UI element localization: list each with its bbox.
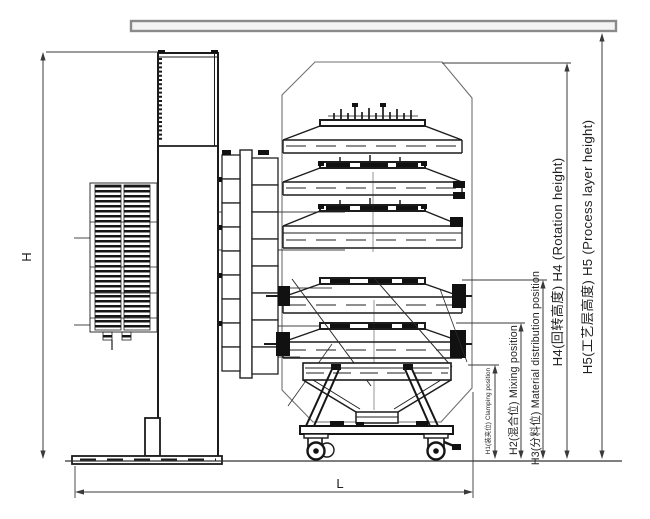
label-H: H: [19, 252, 34, 261]
label-L: L: [336, 476, 343, 491]
funnel-outlet: [356, 412, 398, 423]
discharge-funnel: [303, 363, 451, 423]
column-pedestal: [145, 418, 160, 456]
arrow-left: [75, 489, 84, 494]
arrow-up: [40, 52, 45, 61]
vessel-5: [264, 323, 472, 358]
vessel-2: [283, 155, 465, 199]
vessel-3-latch: [450, 217, 463, 227]
technical-drawing-page: H L H1(装夹位) Clamping position H2(混合位) Mi…: [0, 0, 650, 519]
mixer-elevation-drawing: H L H1(装夹位) Clamping position H2(混合位) Mi…: [0, 0, 650, 519]
hub-segment-stack-right: [252, 158, 278, 374]
fin-column-right: [124, 185, 150, 330]
funnel-band: [303, 363, 451, 380]
fin-column-left: [95, 185, 121, 330]
dim-L: L: [75, 392, 473, 498]
cooling-fin-stack: [74, 183, 158, 350]
label-H2: H2(混合位) Mixing position: [507, 325, 520, 455]
vessel-4: [266, 278, 472, 313]
hub-segment-stack-left: [222, 155, 240, 371]
dim-H5: H5(工艺层高度) H5 (Process layer height): [579, 33, 605, 459]
label-H5: H5(工艺层高度) H5 (Process layer height): [579, 120, 595, 375]
vessel-1-lid: [320, 120, 425, 126]
column-body: [158, 53, 218, 460]
cart-platform: [300, 426, 453, 434]
dim-H3: H3(分料位) Material distribution position: [462, 271, 547, 465]
label-H4: H4(回转高度) H4 (Rotation height): [549, 158, 565, 367]
vessel-1: [283, 103, 462, 153]
support-column: [158, 50, 218, 460]
label-H1: H1(装夹位) Clamping position: [483, 367, 492, 454]
brake-lever: [452, 444, 461, 450]
ceiling-bar: [131, 21, 616, 31]
caster-wheel-left: [304, 434, 334, 460]
vessel-2-latch: [453, 181, 465, 199]
process-layer-beam: [131, 21, 616, 31]
arrow-right: [464, 489, 473, 494]
arrow-down: [40, 451, 45, 460]
vessel-1-bolts: [334, 106, 411, 120]
label-H3: H3(分料位) Material distribution position: [529, 271, 542, 465]
caster-wheel-right: [424, 434, 461, 460]
hub-guide-strip: [240, 150, 252, 378]
